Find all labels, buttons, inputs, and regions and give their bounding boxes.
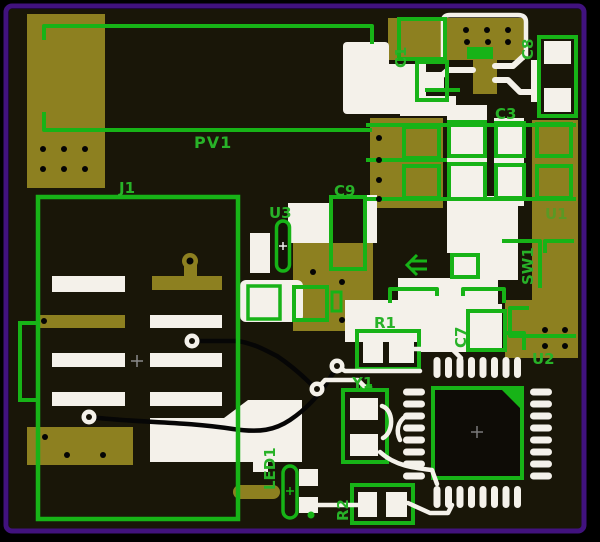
label-pv1: PV1	[194, 133, 232, 152]
label-u3: U3	[269, 204, 292, 222]
capbank-left-pad[interactable]	[370, 118, 443, 208]
j1-bottom-pad[interactable]	[27, 427, 133, 465]
label-j1: J1	[118, 179, 135, 197]
label-u1: U1	[545, 205, 568, 223]
pv1-connector-pad[interactable]	[27, 14, 105, 188]
j1-pad-olive-right[interactable]	[152, 276, 222, 290]
label-led1: LED1	[261, 447, 279, 490]
label-c9: C9	[334, 182, 355, 200]
label-u2: U2	[532, 350, 555, 368]
pcb-canvas: PV1 J1 U3 C9 C1 C8 C3 U1 SW1 R1 C7 U2 Y1…	[0, 0, 600, 542]
label-y1: Y1	[351, 374, 373, 392]
top-module-stem	[473, 58, 497, 94]
label-c7: C7	[452, 327, 470, 348]
label-c8: C8	[519, 39, 537, 60]
label-sw1: SW1	[519, 247, 537, 285]
component-u3[interactable]	[277, 221, 290, 271]
label-c3: C3	[495, 105, 516, 123]
mid-white-pad[interactable]	[248, 286, 280, 319]
j1-pad-olive-left[interactable]	[38, 315, 125, 328]
label-r2: R2	[334, 499, 352, 521]
pcb-screenshot: PV1 J1 U3 C9 C1 C8 C3 U1 SW1 R1 C7 U2 Y1…	[0, 0, 600, 542]
top-module-green-pad	[467, 47, 493, 59]
label-c1: C1	[392, 47, 410, 68]
label-r1: R1	[374, 314, 396, 332]
